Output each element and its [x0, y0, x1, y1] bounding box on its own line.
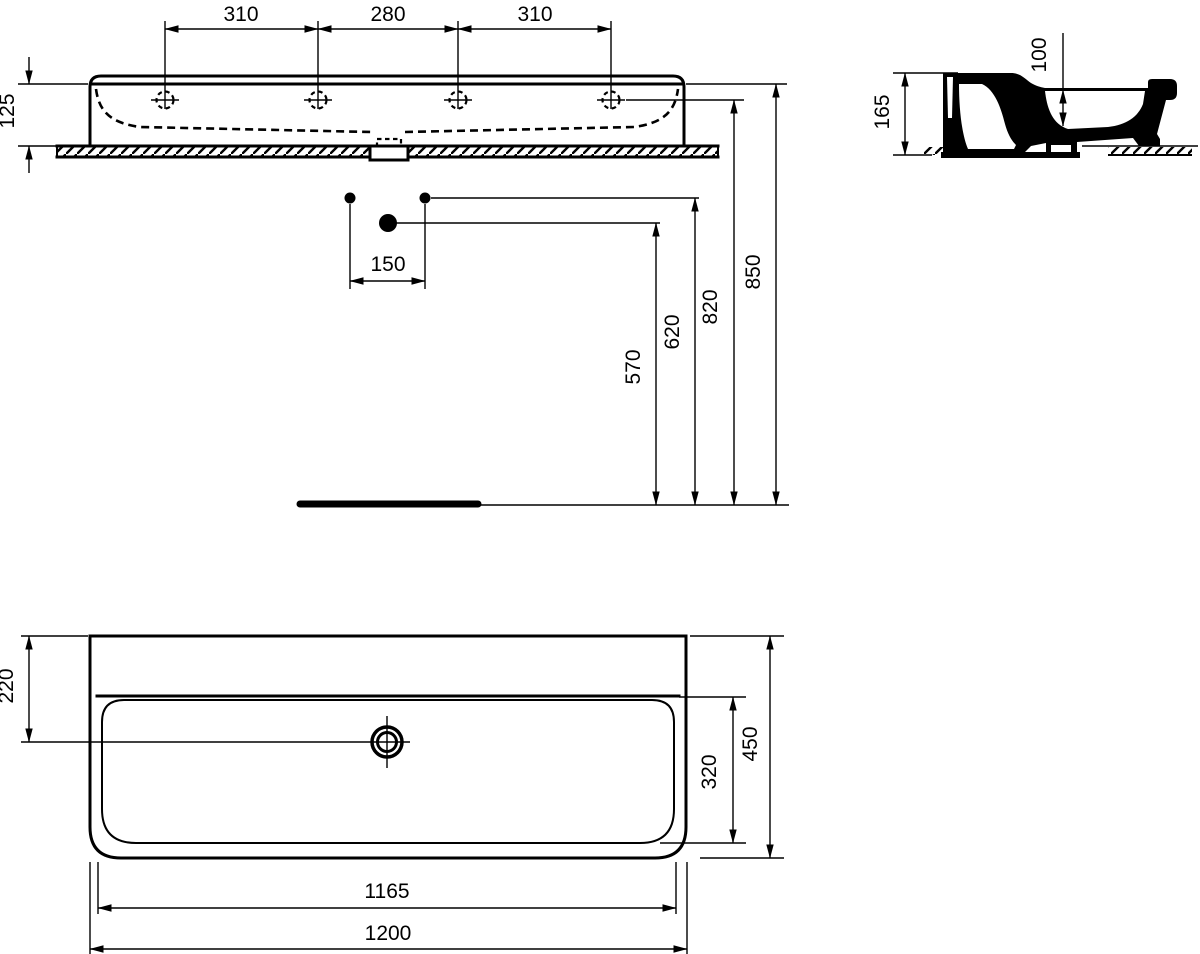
supply-dot-right	[420, 193, 431, 204]
dim-tap-spacing-center: 280	[318, 3, 458, 29]
plan-drain-symbol	[21, 716, 410, 768]
tap-hole-symbol-1	[151, 21, 179, 109]
side-hatch-right	[1108, 147, 1192, 155]
tap-hole-symbol-4	[597, 21, 625, 109]
dim-label-100: 100	[1028, 37, 1051, 72]
dim-rim-height-850: 850	[742, 84, 776, 505]
supply-dot-left	[345, 193, 356, 204]
dim-label-320: 320	[698, 754, 721, 789]
dim-supply-height-620: 620	[661, 198, 695, 505]
technical-drawing-page: 310 280 310 125 15	[0, 0, 1200, 954]
tap-hole-symbol-2	[304, 21, 332, 109]
side-section-view: 165 100	[871, 33, 1198, 158]
plan-bowl-outline	[102, 700, 674, 843]
dim-label-310-left: 310	[223, 3, 258, 26]
dim-label-450: 450	[739, 726, 762, 761]
dim-tap-spacing-left: 310	[165, 3, 318, 29]
dim-overall-depth-450: 450	[690, 636, 784, 858]
dim-tap-spacing-right: 310	[458, 3, 611, 29]
front-view: 310 280 310 125	[0, 3, 787, 173]
dim-drain-height-570: 570	[622, 223, 656, 505]
mounting-slot	[947, 77, 953, 118]
side-hatch-left	[924, 147, 968, 155]
dim-label-1165: 1165	[364, 880, 409, 903]
dim-bowl-width-1165: 1165	[98, 862, 676, 914]
dim-label-280: 280	[370, 3, 405, 26]
dim-label-165: 165	[871, 94, 894, 129]
dim-label-310-right: 310	[517, 3, 552, 26]
dim-supply-offset-150: 150	[350, 253, 425, 281]
dim-label-850: 850	[742, 254, 765, 289]
dim-label-620: 620	[661, 314, 684, 349]
drain-dot	[379, 214, 397, 232]
plan-view: 220 450 320 1165 1200	[0, 636, 784, 954]
tap-hole-symbol-3	[444, 21, 472, 109]
bowl-bottom-dashed-right	[405, 89, 678, 132]
dim-label-125: 125	[0, 93, 19, 128]
washbasin-technical-drawing: 310 280 310 125 15	[0, 0, 1200, 954]
dim-taphole-height-820: 820	[699, 100, 734, 505]
dim-label-220: 220	[0, 668, 18, 703]
bowl-bottom-dashed-left	[96, 89, 371, 132]
dim-label-1200: 1200	[365, 922, 412, 945]
drain-waste-box	[370, 146, 408, 160]
plan-outer-outline	[90, 636, 686, 858]
dim-label-570: 570	[622, 349, 645, 384]
dim-label-820: 820	[699, 289, 722, 324]
dim-front-to-drain-220: 220	[0, 636, 88, 742]
dim-label-150: 150	[370, 253, 405, 276]
basin-outline	[90, 76, 684, 146]
